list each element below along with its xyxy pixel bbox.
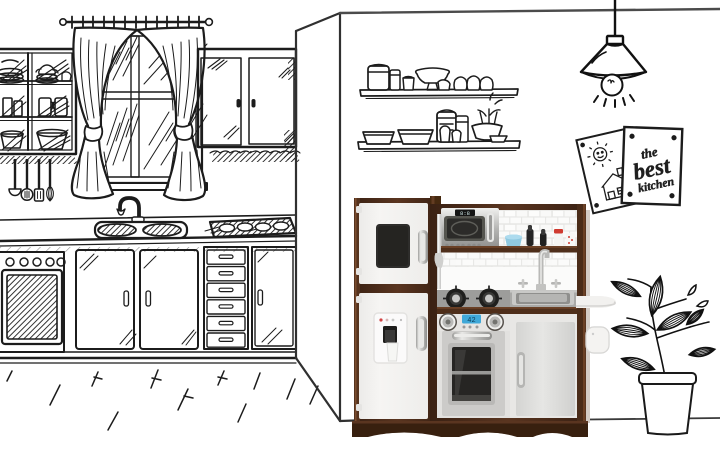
svg-text:42: 42 — [467, 317, 475, 325]
svg-text:8:8: 8:8 — [460, 210, 470, 217]
